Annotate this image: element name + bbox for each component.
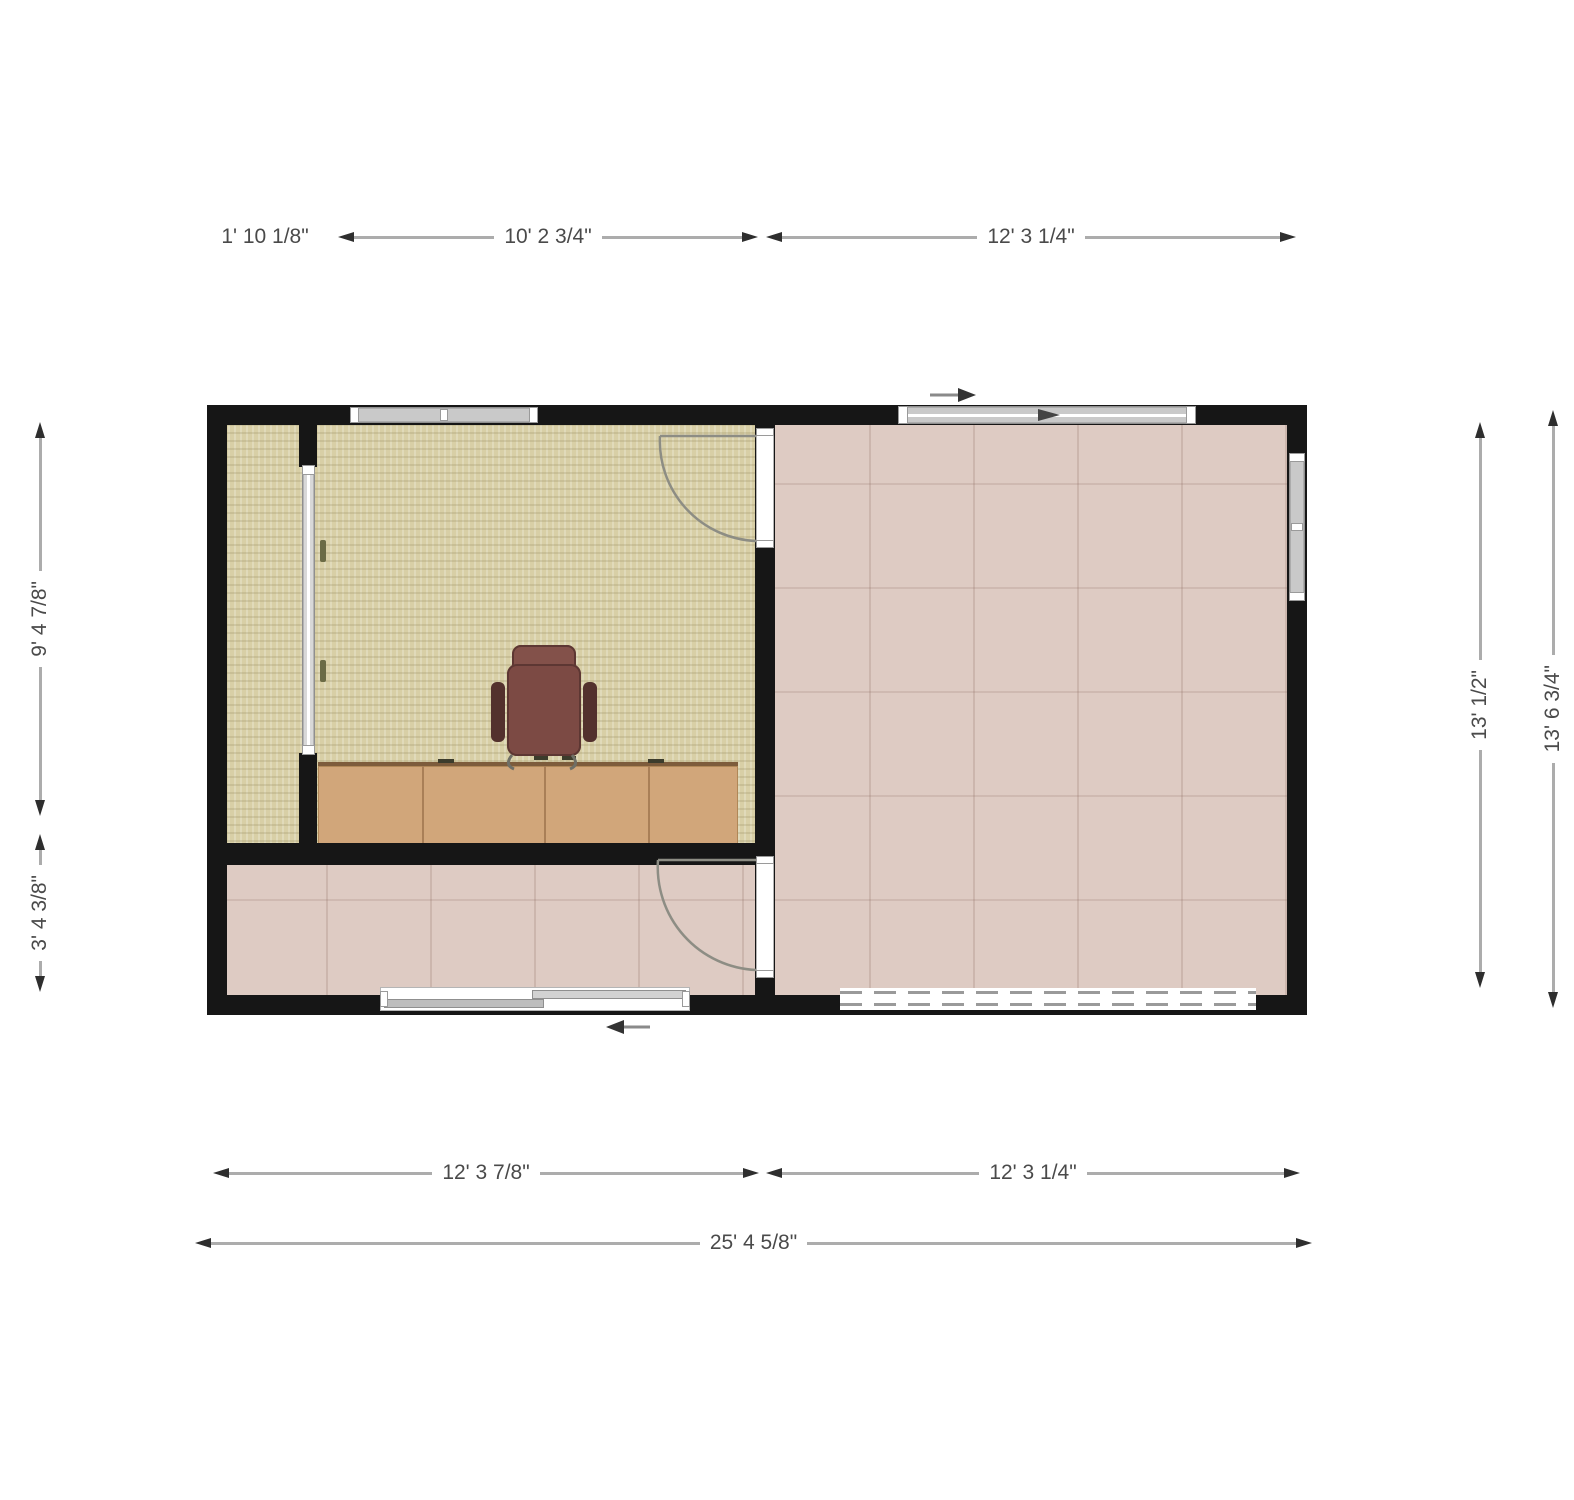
interior-wall-stub-top — [299, 405, 317, 467]
window-end-cap — [380, 991, 388, 1007]
floor-plan-canvas: 1' 10 1/8" 10' 2 3/4" 12' 3 1/4" 9' 4 7/… — [0, 0, 1574, 1500]
window-end-cap — [1186, 406, 1196, 424]
dim-bottom-overall-width: 25' 4 5/8" — [195, 1228, 1312, 1258]
desk — [318, 762, 738, 849]
window-mullion — [1291, 523, 1303, 531]
window-end-cap — [302, 465, 315, 475]
sliding-door-bottom — [380, 987, 690, 1011]
dim-top-offset: 1' 10 1/8" — [190, 222, 340, 252]
slide-direction-right-icon — [930, 388, 976, 402]
dim-label: 25' 4 5/8" — [700, 1231, 807, 1255]
interior-wall-horizontal — [207, 843, 775, 865]
dim-left-hall-height: 3' 4 3/8" — [25, 834, 55, 992]
arrow-up-icon — [35, 834, 45, 850]
dim-label: 1' 10 1/8" — [211, 225, 318, 249]
dim-label: 10' 2 3/4" — [494, 225, 601, 249]
interior-sliding-panel — [302, 465, 315, 755]
arrow-up-icon — [1548, 410, 1558, 426]
desk-panel-divider — [544, 766, 546, 849]
dim-top-office-width: 10' 2 3/4" — [338, 222, 758, 252]
sliding-door-panel — [384, 999, 544, 1008]
arrow-down-icon — [35, 976, 45, 992]
office-chair-seat — [507, 664, 581, 756]
dim-label: 13' 6 3/4" — [1541, 655, 1565, 762]
arrow-left-icon — [195, 1238, 211, 1248]
arrow-up-icon — [1475, 422, 1485, 438]
window-end-cap — [1289, 453, 1305, 462]
arrow-up-icon — [35, 422, 45, 438]
hall-room-floor — [222, 855, 767, 1005]
panel-track — [307, 475, 310, 745]
dim-bottom-left-width: 12' 3 7/8" — [213, 1158, 759, 1188]
office-chair-armrest-right — [583, 682, 597, 742]
arrow-right-icon — [1284, 1168, 1300, 1178]
main-room-window-right — [1289, 453, 1305, 601]
sliding-door-top — [898, 406, 1196, 424]
sliding-door-track — [908, 414, 1186, 417]
opening-dash-line — [840, 991, 1256, 994]
dim-right-overall-height: 13' 6 3/4" — [1538, 410, 1568, 1008]
window-end-cap — [898, 406, 908, 424]
dim-label: 13' 1/2" — [1468, 660, 1492, 750]
hall-door-opening — [756, 856, 774, 978]
dim-label: 12' 3 1/4" — [979, 1161, 1086, 1185]
window-end-cap — [529, 407, 538, 423]
office-window-top — [350, 407, 538, 423]
arrow-left-icon — [766, 232, 782, 242]
arrow-down-icon — [1548, 992, 1558, 1008]
door-jamb — [756, 856, 774, 864]
main-room-floor — [765, 420, 1295, 1005]
arrow-down-icon — [1475, 972, 1485, 988]
outer-wall-left — [207, 405, 227, 1015]
sliding-door-panel — [532, 990, 686, 999]
door-jamb — [756, 540, 774, 548]
desk-panel-divider — [422, 766, 424, 849]
arrow-left-icon — [338, 232, 354, 242]
dim-label: 9' 4 7/8" — [28, 571, 52, 667]
interior-wall-stub-bottom — [299, 753, 317, 848]
dim-label: 12' 3 1/4" — [977, 225, 1084, 249]
window-end-cap — [682, 991, 690, 1007]
office-chair-armrest-left — [491, 682, 505, 742]
arrow-left-icon — [766, 1168, 782, 1178]
window-mullion — [440, 409, 448, 421]
window-end-cap — [1289, 592, 1305, 601]
dim-label: 12' 3 7/8" — [432, 1161, 539, 1185]
arrow-right-icon — [1296, 1238, 1312, 1248]
dim-bottom-right-width: 12' 3 1/4" — [766, 1158, 1300, 1188]
window-end-cap — [350, 407, 359, 423]
window-end-cap — [302, 745, 315, 755]
arrow-left-icon — [213, 1168, 229, 1178]
arrow-right-icon — [743, 1168, 759, 1178]
door-jamb — [756, 970, 774, 978]
door-jamb — [756, 428, 774, 436]
office-door-opening — [756, 428, 774, 548]
desk-panel-divider — [648, 766, 650, 849]
slide-direction-left-icon — [606, 1020, 650, 1034]
arrow-down-icon — [35, 800, 45, 816]
dim-label: 3' 4 3/8" — [28, 865, 52, 961]
dim-top-main-room-width: 12' 3 1/4" — [766, 222, 1296, 252]
arrow-right-icon — [742, 232, 758, 242]
dim-right-interior-height: 13' 1/2" — [1465, 422, 1495, 988]
opening-dash-line — [840, 1003, 1256, 1006]
arrow-right-icon — [1280, 232, 1296, 242]
dim-left-office-height: 9' 4 7/8" — [25, 422, 55, 816]
main-room-bottom-opening — [840, 988, 1256, 1010]
